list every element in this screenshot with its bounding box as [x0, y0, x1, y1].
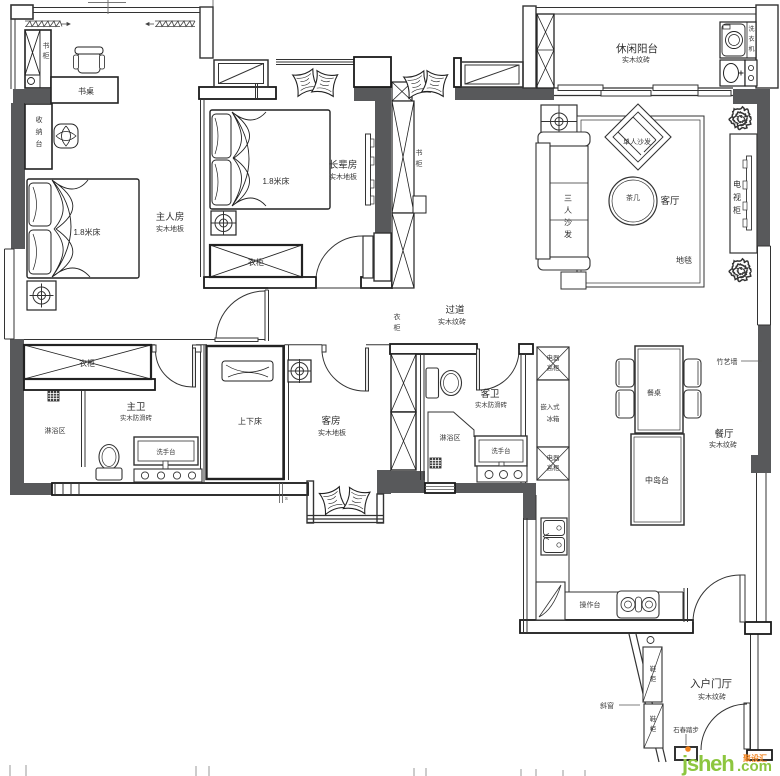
svg-text:电器: 电器: [547, 353, 560, 362]
svg-text:台: 台: [36, 139, 43, 148]
svg-text:淋浴区: 淋浴区: [440, 433, 461, 442]
svg-text:主人房: 主人房: [156, 211, 185, 223]
svg-text:衣: 衣: [748, 35, 754, 43]
svg-text:柜: 柜: [394, 323, 401, 332]
svg-text:电: 电: [733, 179, 741, 189]
svg-text:实木地板: 实木地板: [156, 224, 184, 233]
svg-text:过道: 过道: [445, 304, 465, 316]
svg-text:嵌入式: 嵌入式: [540, 402, 560, 411]
svg-text:书: 书: [416, 148, 423, 157]
svg-text:高柜: 高柜: [547, 463, 560, 472]
svg-text:斜窗: 斜窗: [600, 701, 614, 710]
svg-text:中岛台: 中岛台: [645, 475, 669, 485]
svg-text:实木纹砖: 实木纹砖: [709, 440, 737, 449]
svg-text:柜: 柜: [650, 724, 657, 733]
svg-text:客厅: 客厅: [660, 195, 680, 207]
svg-text:高柜: 高柜: [547, 363, 560, 372]
svg-text:长辈房: 长辈房: [329, 159, 358, 171]
svg-text:收: 收: [36, 115, 43, 124]
svg-text:聚设汇: 聚设汇: [742, 753, 767, 763]
svg-text:淋浴区: 淋浴区: [45, 426, 66, 435]
svg-text:纳: 纳: [36, 127, 43, 136]
svg-text:发: 发: [564, 229, 572, 239]
svg-text:人: 人: [564, 206, 572, 215]
svg-text:洗手台: 洗手台: [491, 446, 510, 455]
svg-text:上下床: 上下床: [238, 416, 262, 426]
svg-text:书: 书: [43, 41, 50, 50]
svg-text:实木纹砖: 实木纹砖: [698, 692, 726, 701]
svg-text:客卫: 客卫: [480, 388, 500, 400]
svg-text:1.8米床: 1.8米床: [73, 227, 100, 237]
svg-text:柜: 柜: [416, 159, 423, 168]
svg-text:s: s: [285, 496, 288, 502]
svg-text:洗: 洗: [748, 25, 754, 33]
svg-text:柜: 柜: [43, 51, 50, 60]
svg-text:实木纹砖: 实木纹砖: [622, 55, 650, 64]
svg-text:客房: 客房: [321, 415, 340, 427]
svg-text:入户门厅: 入户门厅: [690, 677, 732, 690]
svg-text:实木防滑砖: 实木防滑砖: [120, 413, 153, 422]
svg-text:餐厅: 餐厅: [714, 428, 734, 440]
svg-text:书桌: 书桌: [78, 86, 94, 96]
svg-text:视: 视: [733, 192, 741, 202]
svg-text:衣柜: 衣柜: [79, 358, 95, 368]
svg-text:鞋: 鞋: [650, 664, 657, 673]
svg-text:竹艺墙: 竹艺墙: [717, 357, 738, 366]
svg-text:石春踏步: 石春踏步: [673, 725, 699, 734]
svg-text:主卫: 主卫: [126, 401, 146, 413]
svg-text:餐桌: 餐桌: [647, 388, 661, 397]
svg-text:1.8米床: 1.8米床: [262, 176, 289, 186]
svg-text:实木纹砖: 实木纹砖: [438, 317, 466, 326]
svg-text:衣: 衣: [394, 312, 401, 321]
svg-text:操作台: 操作台: [580, 600, 601, 609]
svg-text:实木防滑砖: 实木防滑砖: [475, 400, 508, 409]
svg-text:电器: 电器: [547, 453, 560, 462]
svg-text:实木地板: 实木地板: [318, 428, 346, 437]
svg-text:实木地板: 实木地板: [329, 172, 357, 181]
svg-text:衣柜: 衣柜: [248, 257, 264, 267]
svg-text:单人沙发: 单人沙发: [623, 137, 651, 146]
svg-text:茶几: 茶几: [626, 193, 640, 202]
svg-text:地毯: 地毯: [676, 255, 692, 265]
svg-text:机: 机: [748, 45, 754, 53]
svg-text:柜: 柜: [733, 205, 741, 215]
svg-text:休闲阳台: 休闲阳台: [616, 42, 658, 55]
svg-text:三: 三: [564, 194, 572, 203]
svg-text:沙: 沙: [564, 218, 572, 227]
svg-text:洗手台: 洗手台: [156, 447, 175, 456]
svg-text:柜: 柜: [650, 674, 657, 683]
svg-text:jsheh: jsheh: [681, 751, 734, 776]
svg-text:鞋: 鞋: [650, 714, 657, 723]
svg-text:冰箱: 冰箱: [547, 414, 560, 423]
